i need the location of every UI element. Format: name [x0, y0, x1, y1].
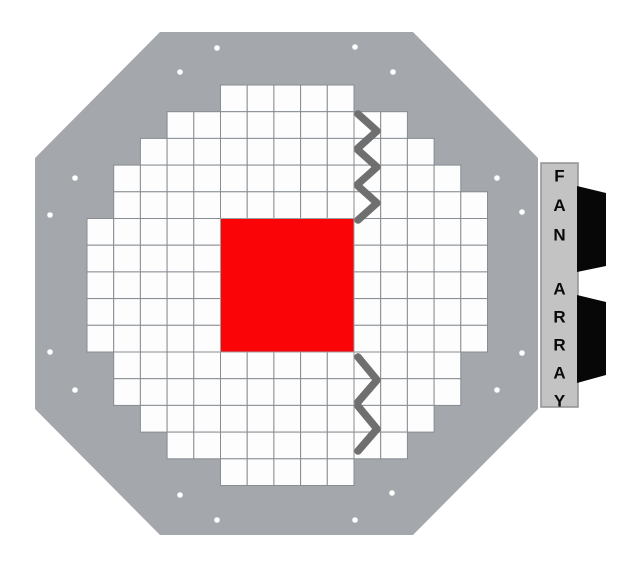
grid-cell [301, 138, 328, 165]
grid-cell [194, 272, 221, 299]
grid-cell [381, 138, 408, 165]
grid-cell [434, 299, 461, 326]
fan-array-label-letter: A [553, 364, 565, 383]
grid-cell [140, 379, 167, 406]
grid-cell [461, 325, 488, 352]
grid-cell [247, 112, 274, 139]
grid-cell [407, 379, 434, 406]
grid-cell [167, 245, 194, 272]
grid-cell [140, 405, 167, 432]
grid-cell [167, 325, 194, 352]
grid-cell [167, 165, 194, 192]
grid-cell [301, 165, 328, 192]
grid-cell [167, 432, 194, 459]
grid-cell [461, 245, 488, 272]
fan-array-label-letter: A [553, 280, 565, 299]
screw-hole [390, 69, 396, 75]
grid-cell [167, 379, 194, 406]
grid-cell [274, 352, 301, 379]
screw-hole [177, 492, 183, 498]
screw-hole [214, 45, 220, 51]
grid-cell [167, 405, 194, 432]
fan-units-layer [577, 186, 606, 383]
grid-cell [194, 299, 221, 326]
grid-cell [274, 432, 301, 459]
grid-cell [114, 219, 141, 246]
grid-cell [327, 405, 354, 432]
fan-array-diagram: FANARRAY [0, 0, 636, 575]
grid-cell [461, 299, 488, 326]
grid-cell [114, 245, 141, 272]
grid-cell [434, 325, 461, 352]
grid-cell [354, 245, 381, 272]
grid-cell [247, 459, 274, 486]
fan-array-label-letter: R [553, 308, 565, 327]
grid-cell [274, 165, 301, 192]
grid-cell [274, 138, 301, 165]
grid-cell [87, 325, 114, 352]
grid-cell [194, 165, 221, 192]
grid-cell [407, 272, 434, 299]
grid-cell [194, 379, 221, 406]
grid-cell [194, 112, 221, 139]
grid-cell [167, 352, 194, 379]
scene-svg: FANARRAY [0, 0, 636, 575]
grid-cell [407, 352, 434, 379]
grid-cell [247, 85, 274, 112]
grid-cell [221, 85, 248, 112]
grid-cell [434, 165, 461, 192]
grid-cell [407, 405, 434, 432]
grid-cell [114, 379, 141, 406]
grid-cell [274, 379, 301, 406]
grid-cell [407, 299, 434, 326]
grid-cell [381, 379, 408, 406]
grid-cell [301, 459, 328, 486]
screw-hole [494, 175, 500, 181]
grid-cell [194, 405, 221, 432]
grid-cell [381, 352, 408, 379]
grid-cell [140, 299, 167, 326]
screw-hole [519, 209, 525, 215]
grid-cell [194, 245, 221, 272]
grid-cell [194, 325, 221, 352]
grid-cell [327, 379, 354, 406]
grid-cell [381, 192, 408, 219]
screw-hole [72, 175, 78, 181]
grid-cell [167, 299, 194, 326]
grid-cell [140, 352, 167, 379]
grid-cell [381, 405, 408, 432]
grid-cell [327, 165, 354, 192]
screw-hole [352, 44, 358, 50]
fan-array-label-letter: Y [554, 392, 566, 411]
fan-unit [577, 295, 606, 383]
grid-cell [301, 192, 328, 219]
grid-cell [247, 432, 274, 459]
grid-cell [407, 192, 434, 219]
grid-cell [167, 138, 194, 165]
grid-cell [461, 219, 488, 246]
grid-cell [167, 272, 194, 299]
screw-hole [519, 350, 525, 356]
grid-cell [221, 192, 248, 219]
grid-cell [301, 379, 328, 406]
grid-cell [114, 272, 141, 299]
grid-cell [140, 272, 167, 299]
grid-cell [327, 352, 354, 379]
grid-cell [140, 165, 167, 192]
grid-cell [407, 219, 434, 246]
fan-array-label-letter: N [553, 226, 565, 245]
grid-cell [87, 299, 114, 326]
grid-cell [140, 245, 167, 272]
grid-cell [434, 245, 461, 272]
grid-cell [381, 325, 408, 352]
grid-cell [381, 245, 408, 272]
screw-hole [389, 490, 395, 496]
grid-cell [221, 112, 248, 139]
grid-cell [87, 245, 114, 272]
grid-cell [461, 272, 488, 299]
grid-cell [221, 459, 248, 486]
fan-unit [577, 186, 606, 272]
grid-cell [381, 219, 408, 246]
fan-array-label-letter: R [553, 336, 565, 355]
grid-cell [167, 219, 194, 246]
grid-cell [247, 379, 274, 406]
grid-cell [301, 432, 328, 459]
fan-array-label-letter: F [554, 167, 564, 186]
grid-cell [194, 352, 221, 379]
center-red-block [221, 219, 355, 353]
screw-hole [72, 387, 78, 393]
grid-cell [407, 325, 434, 352]
grid-cell [354, 272, 381, 299]
grid-cell [434, 272, 461, 299]
grid-cell [381, 272, 408, 299]
grid-cell [114, 352, 141, 379]
grid-cell [327, 192, 354, 219]
grid-cell [114, 325, 141, 352]
grid-cell [167, 112, 194, 139]
grid-cell [247, 352, 274, 379]
grid-cell [327, 138, 354, 165]
grid-cell [301, 85, 328, 112]
grid-cell [114, 192, 141, 219]
grid-cell [434, 192, 461, 219]
grid-cell [434, 379, 461, 406]
grid-cell [140, 192, 167, 219]
grid-cell [407, 245, 434, 272]
grid-cell [274, 405, 301, 432]
grid-cell [221, 405, 248, 432]
screw-hole [214, 517, 220, 523]
grid-cell [381, 432, 408, 459]
grid-cell [140, 219, 167, 246]
grid-cell [274, 192, 301, 219]
screw-hole [47, 212, 53, 218]
grid-cell [194, 192, 221, 219]
grid-cell [407, 165, 434, 192]
grid-cell [167, 192, 194, 219]
grid-cell [434, 219, 461, 246]
grid-cell [221, 432, 248, 459]
grid-cell [274, 459, 301, 486]
grid-cell [194, 219, 221, 246]
grid-cell [87, 272, 114, 299]
grid-cell [381, 112, 408, 139]
grid-cell [274, 112, 301, 139]
grid-cell [194, 432, 221, 459]
grid-cell [221, 138, 248, 165]
grid-cell [327, 459, 354, 486]
grid-cell [301, 352, 328, 379]
grid-cell [354, 325, 381, 352]
fan-bar-layer: FANARRAY [541, 163, 578, 411]
grid-cell [114, 299, 141, 326]
grid-cell [87, 219, 114, 246]
grid-cell [247, 138, 274, 165]
grid-cell [327, 112, 354, 139]
grid-cell [247, 192, 274, 219]
center-block-layer [221, 219, 355, 353]
grid-cell [194, 138, 221, 165]
grid-cell [407, 138, 434, 165]
grid-cell [140, 325, 167, 352]
grid-cell [354, 299, 381, 326]
grid-cell [221, 379, 248, 406]
grid-cell [381, 299, 408, 326]
grid-cell [461, 192, 488, 219]
grid-cell [221, 165, 248, 192]
grid-cell [114, 165, 141, 192]
grid-cell [381, 165, 408, 192]
grid-cell [301, 405, 328, 432]
screw-hole [177, 69, 183, 75]
grid-cell [274, 85, 301, 112]
grid-cell [221, 352, 248, 379]
screw-hole [494, 387, 500, 393]
grid-cell [247, 165, 274, 192]
grid-cell [327, 85, 354, 112]
grid-cell [301, 112, 328, 139]
grid-cell [247, 405, 274, 432]
fan-array-label-letter: A [553, 196, 565, 215]
grid-cell [327, 432, 354, 459]
screw-hole [47, 349, 53, 355]
screw-hole [352, 517, 358, 523]
grid-cell [140, 138, 167, 165]
grid-cell [434, 352, 461, 379]
